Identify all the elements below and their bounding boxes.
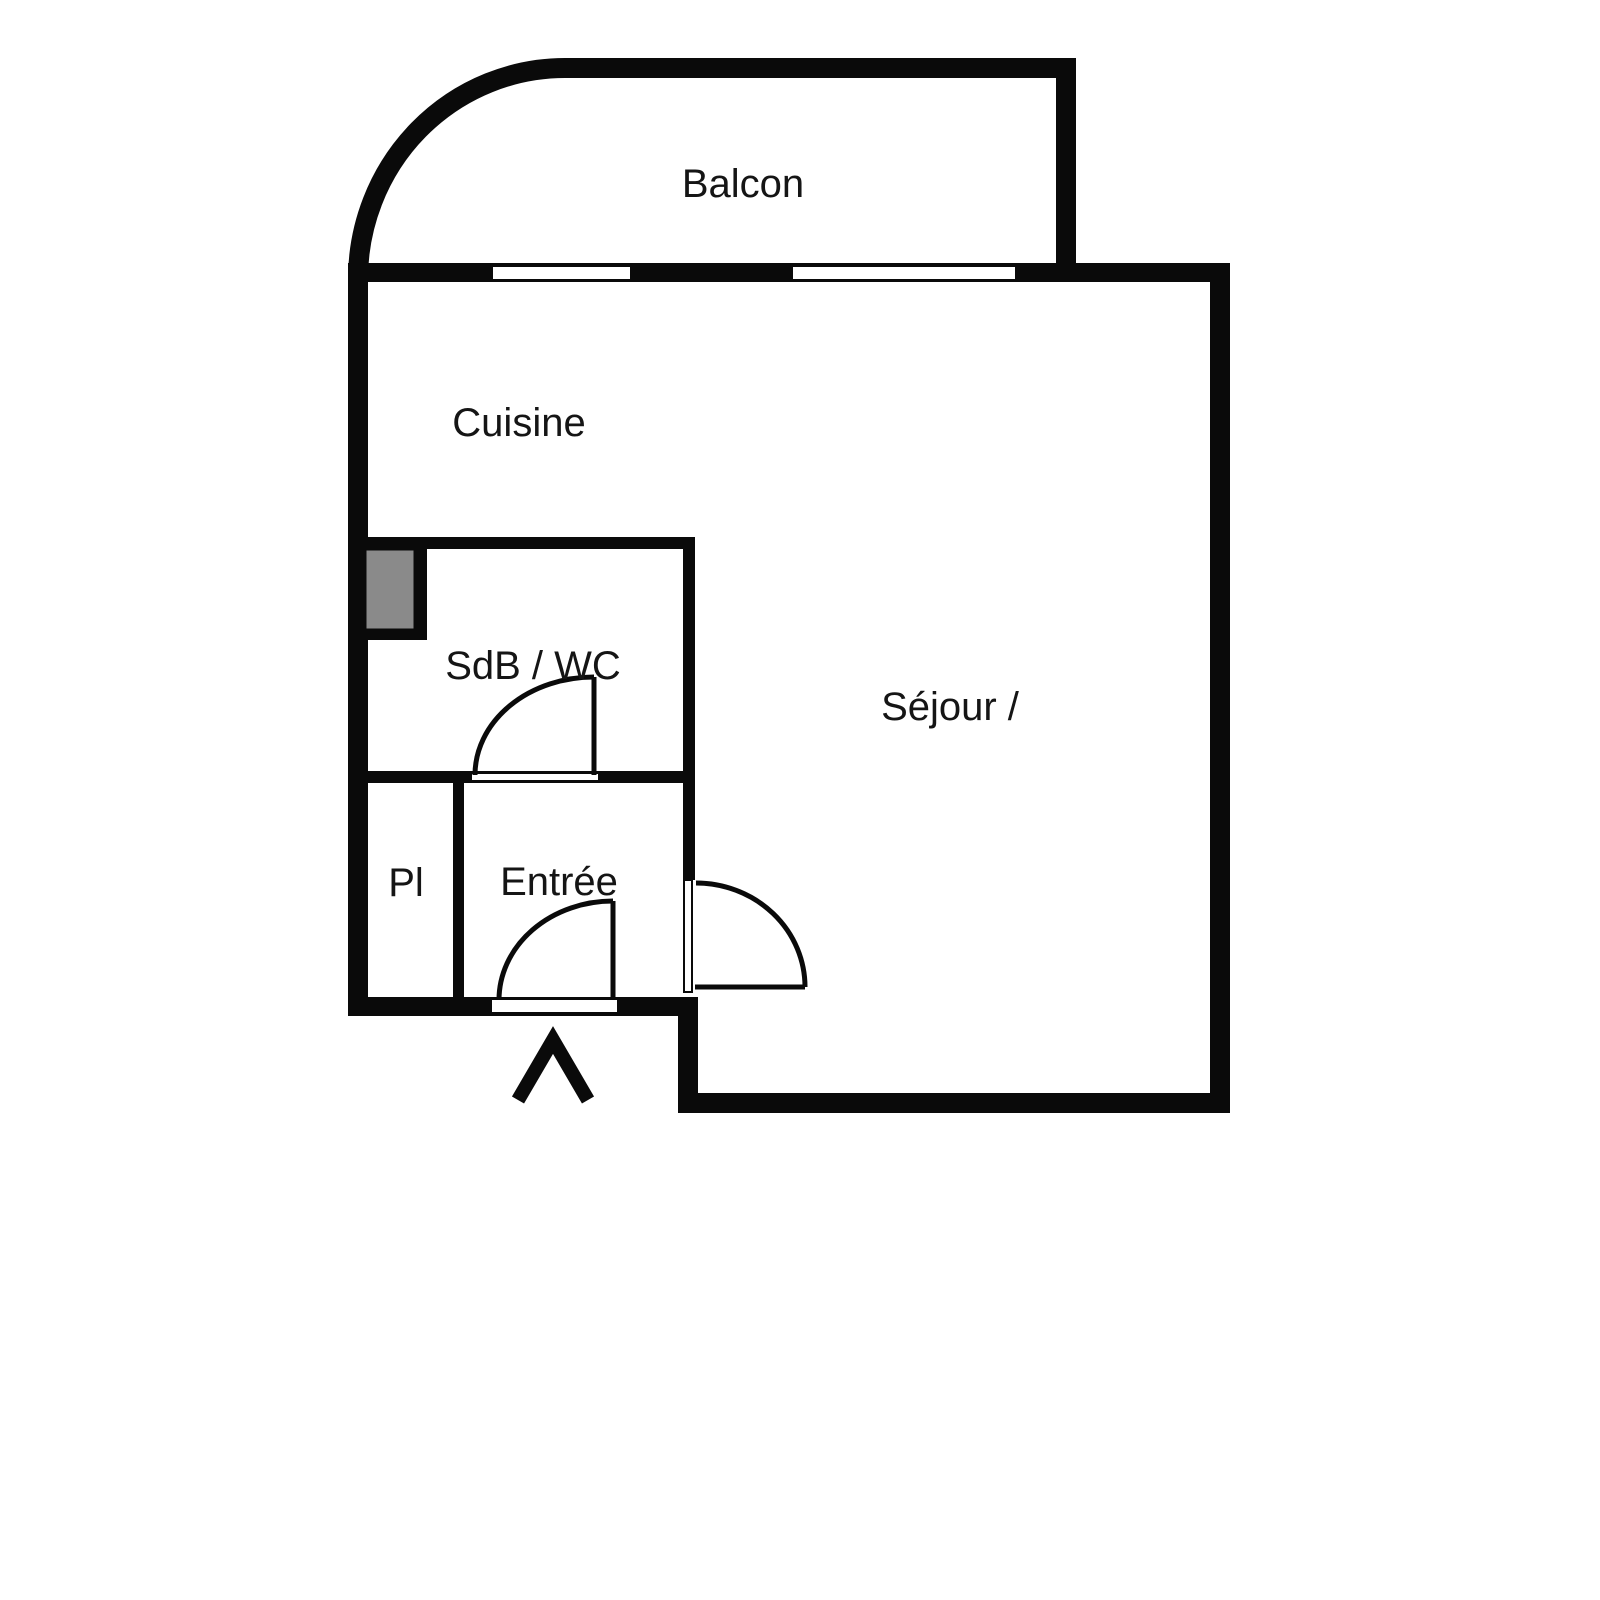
wall-pl-divider <box>453 783 464 1005</box>
room-label-entree: Entrée <box>500 862 618 902</box>
room-label-sdb-wc: SdB / WC <box>445 646 621 686</box>
entrance-door-arc <box>499 901 613 1000</box>
window-slot-right <box>793 267 1015 279</box>
wall-right <box>1210 263 1230 1113</box>
floor-plan-canvas: Balcon Cuisine SdB / WC Séjour / Pl Entr… <box>0 0 1600 1600</box>
threshold-entrance-door <box>492 1000 617 1012</box>
sdb-door-arc <box>475 677 594 775</box>
duct-shaft <box>365 549 415 630</box>
threshold-sdb-door <box>472 774 598 780</box>
room-label-pl: Pl <box>388 863 424 903</box>
wall-sdb-top <box>348 537 695 549</box>
wall-sdb-right <box>683 537 695 880</box>
wall-top <box>348 263 1230 282</box>
room-label-sejour: Séjour / <box>881 687 1019 727</box>
threshold-sejour-door <box>684 880 692 992</box>
room-label-cuisine: Cuisine <box>452 403 585 443</box>
window-slot-left <box>493 267 630 279</box>
sejour-door-arc <box>696 883 805 987</box>
wall-duct-right <box>415 549 427 640</box>
room-label-balcon: Balcon <box>682 164 804 204</box>
floorplan-svg <box>0 0 1600 1600</box>
wall-bottom-right <box>678 1093 1230 1113</box>
entrance-arrow-icon <box>518 1040 588 1100</box>
